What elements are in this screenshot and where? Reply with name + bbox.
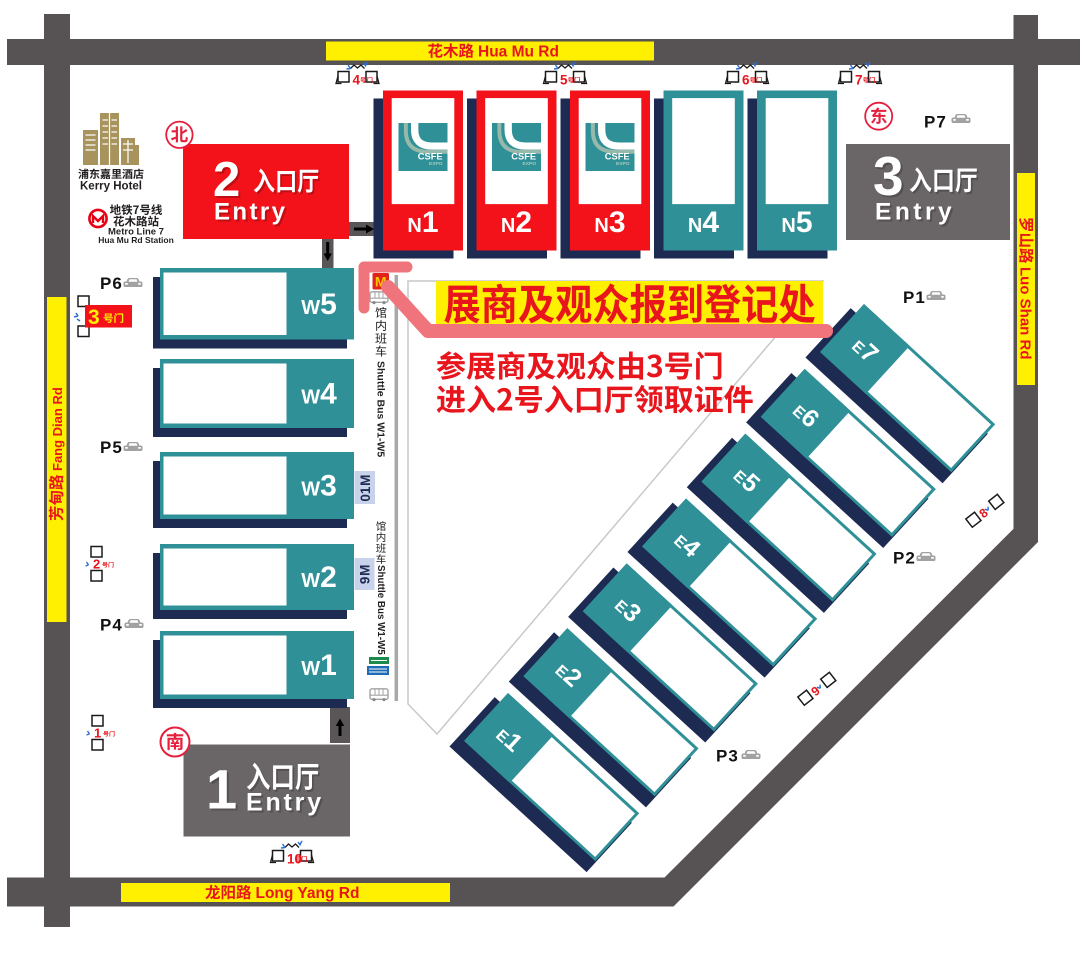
svg-text:P2: P2 bbox=[893, 549, 916, 568]
svg-text:Kerry Hotel: Kerry Hotel bbox=[80, 181, 142, 193]
svg-text:6: 6 bbox=[742, 73, 750, 88]
svg-text:1: 1 bbox=[94, 726, 101, 741]
svg-text:3: 3 bbox=[88, 306, 100, 329]
svg-text:Hua Mu Rd Station: Hua Mu Rd Station bbox=[98, 235, 174, 245]
svg-text:1: 1 bbox=[358, 486, 373, 494]
svg-text:P1: P1 bbox=[903, 288, 926, 307]
svg-text:Entry: Entry bbox=[875, 199, 955, 226]
svg-text:2: 2 bbox=[93, 557, 100, 572]
svg-text:9: 9 bbox=[357, 577, 372, 585]
svg-text:Long Yang Rd: Long Yang Rd bbox=[256, 885, 360, 902]
svg-text:0: 0 bbox=[358, 494, 373, 502]
svg-text:1: 1 bbox=[206, 758, 237, 821]
svg-text:Entry: Entry bbox=[214, 199, 287, 226]
svg-text:P6: P6 bbox=[100, 274, 123, 293]
svg-text:P4: P4 bbox=[100, 616, 123, 635]
svg-text:Hua Mu Rd: Hua Mu Rd bbox=[478, 44, 559, 61]
svg-text:7: 7 bbox=[855, 73, 863, 88]
svg-text:Entry: Entry bbox=[246, 789, 324, 817]
svg-text:M: M bbox=[358, 475, 373, 486]
svg-text:Fang Dian Rd: Fang Dian Rd bbox=[50, 387, 65, 471]
svg-text:4: 4 bbox=[353, 73, 361, 88]
svg-text:P5: P5 bbox=[100, 438, 123, 457]
svg-text:M: M bbox=[357, 565, 372, 576]
svg-text:Luo Shan Rd: Luo Shan Rd bbox=[1017, 267, 1034, 360]
svg-text:5: 5 bbox=[560, 73, 568, 88]
svg-text:P3: P3 bbox=[716, 747, 739, 766]
svg-text:Shuttle Bus W1-W5: Shuttle Bus W1-W5 bbox=[375, 361, 387, 457]
svg-text:P7: P7 bbox=[924, 113, 947, 132]
svg-text:Shuttle Bus W1-W5: Shuttle Bus W1-W5 bbox=[375, 565, 386, 655]
